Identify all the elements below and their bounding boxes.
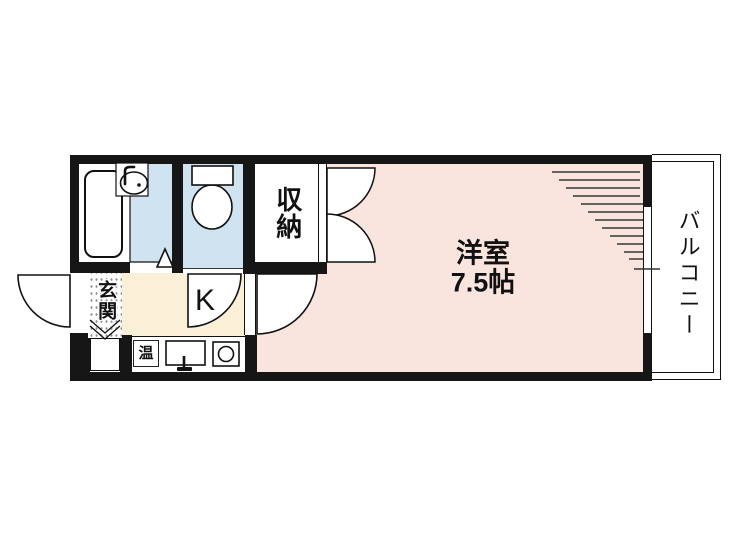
kitchen-label: K <box>195 285 215 317</box>
wall-right-upper <box>643 164 652 207</box>
entrance-label: 玄関 <box>95 280 115 322</box>
floor-plan-canvas: 洋室 7.5帖 バルコニー 収納 K 玄関 温 <box>0 0 750 550</box>
wall-under-bath <box>70 262 130 273</box>
balcony-label: バルコニー <box>676 209 699 339</box>
shoe-cabinet <box>90 338 120 371</box>
water-heater-label: 温 <box>138 346 153 362</box>
western-room-size: 7.5帖 <box>451 268 516 297</box>
window-sliding <box>643 207 652 333</box>
western-room-label: 洋室 7.5帖 <box>451 239 516 296</box>
wall-bottom <box>70 372 652 381</box>
threshold-toilet <box>183 268 243 274</box>
wall-washroom-toilet <box>172 164 183 273</box>
wall-kitchen-room-lower <box>245 335 257 372</box>
wall-left-upper <box>70 164 79 263</box>
wall-storage-bottom <box>243 262 327 274</box>
western-room-name: 洋室 <box>451 239 516 268</box>
wall-toilet-storage <box>243 164 255 274</box>
wall-entry-right <box>120 335 132 372</box>
kitchen-doorway-frame <box>244 273 256 335</box>
storage-door-panel <box>318 164 327 262</box>
wall-right-lower <box>643 333 652 372</box>
wall-top <box>70 155 652 164</box>
storage-label: 収納 <box>273 186 301 240</box>
entrance-door-arc <box>18 275 70 327</box>
room-toilet <box>183 164 243 268</box>
room-washroom <box>130 164 172 262</box>
threshold-washroom <box>130 262 172 273</box>
room-kitchen <box>122 273 245 336</box>
